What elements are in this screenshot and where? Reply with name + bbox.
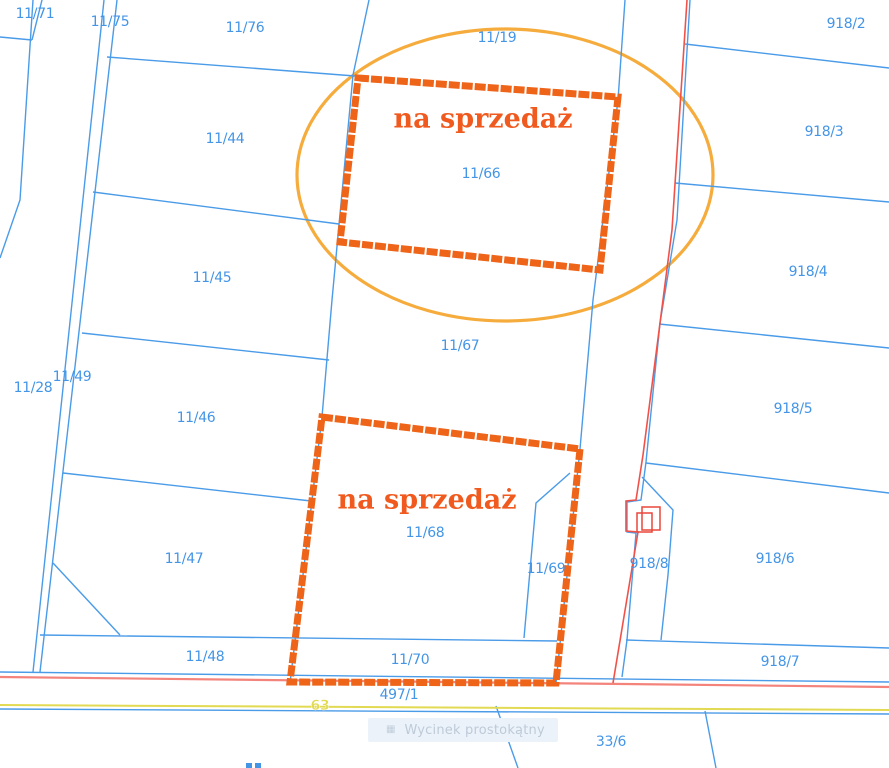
parcel-boundary-line xyxy=(659,324,889,348)
building-outline xyxy=(637,513,652,532)
parcel-label: 11/45 xyxy=(193,270,232,286)
parcel-label: 11/71 xyxy=(16,6,55,22)
clipped-parcel-label-mark xyxy=(246,763,252,768)
clipped-parcel-label-mark xyxy=(255,763,261,768)
parcel-label: 918/6 xyxy=(756,551,795,567)
parcel-label: 918/5 xyxy=(774,401,813,417)
parcel-label: 11/76 xyxy=(226,20,265,36)
crop-tool-watermark: ▦ Wycinek prostokątny xyxy=(368,718,558,742)
parcel-label: 918/4 xyxy=(789,264,828,280)
parcel-label: 11/46 xyxy=(177,410,216,426)
parcel-label: 11/68 xyxy=(406,525,445,541)
crop-icon: ▦ xyxy=(386,725,395,735)
parcel-boundary-line xyxy=(82,333,329,360)
parcel-label: 918/3 xyxy=(805,124,844,140)
parcel-label: 918/7 xyxy=(761,654,800,670)
parcel-boundary-line xyxy=(685,44,889,68)
parcel-boundary-line xyxy=(107,57,355,76)
parcel-boundary-line xyxy=(626,640,889,648)
parcel-label: 11/75 xyxy=(91,14,130,30)
sale-parcel-outline xyxy=(290,417,580,683)
parcel-boundary-line xyxy=(705,711,716,768)
parcel-label: 918/8 xyxy=(630,556,669,572)
parcel-boundary-line xyxy=(675,183,889,202)
building-outline xyxy=(642,507,660,530)
parcel-label: 11/44 xyxy=(206,131,245,147)
parcel-label: 11/70 xyxy=(391,652,430,668)
parcel-label: 497/1 xyxy=(380,687,419,703)
highlight-ellipse xyxy=(297,29,713,321)
road-axis-line xyxy=(613,0,687,683)
parcel-label: 11/47 xyxy=(165,551,204,567)
parcel-label: 11/49 xyxy=(53,369,92,385)
parcel-label: 11/19 xyxy=(478,30,517,46)
sale-annotation-1: na sprzedaż xyxy=(393,104,572,135)
crop-tool-label: Wycinek prostokątny xyxy=(404,723,544,738)
parcel-label: 33/6 xyxy=(596,734,627,750)
road-number-label: 63 xyxy=(311,698,330,714)
parcel-label: 11/48 xyxy=(186,649,225,665)
parcel-boundary-line xyxy=(0,37,32,40)
sale-annotation-2: na sprzedaż xyxy=(337,485,516,516)
parcel-label: 918/2 xyxy=(827,16,866,32)
parcel-boundary-line xyxy=(646,463,889,493)
parcel-label: 11/69 xyxy=(527,561,566,577)
parcel-label: 11/66 xyxy=(462,166,501,182)
parcel-boundary-line xyxy=(63,473,311,501)
parcel-boundary-line xyxy=(33,0,104,672)
parcel-label: 11/28 xyxy=(14,380,53,396)
parcel-label: 11/67 xyxy=(441,338,480,354)
parcel-boundary-line xyxy=(53,563,120,635)
cadastral-map-viewport[interactable]: 11/7111/7511/7611/19918/211/44918/311/66… xyxy=(0,0,889,768)
